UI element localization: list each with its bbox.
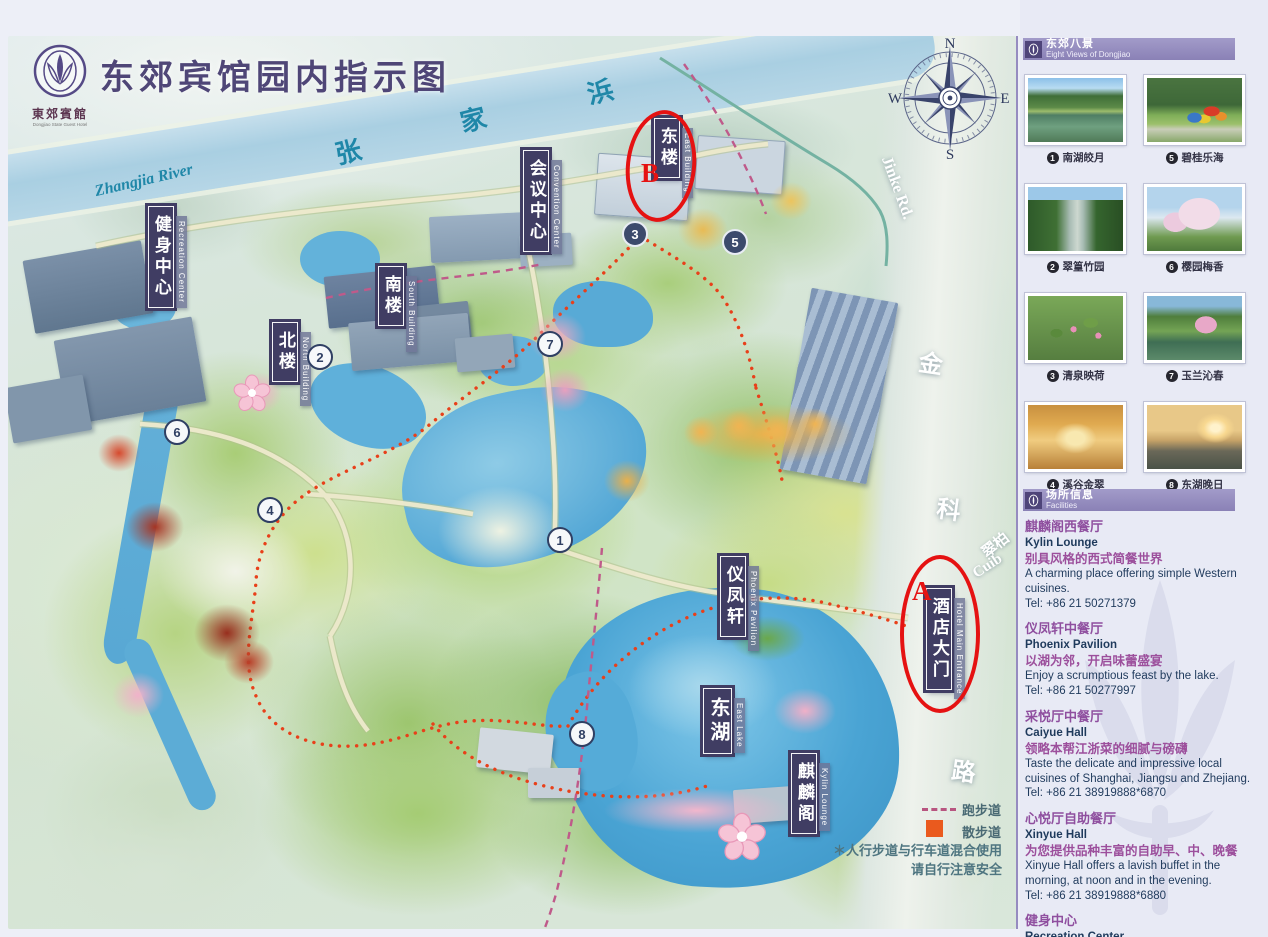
- view-label: 碧桂乐海: [1182, 150, 1224, 165]
- place-label-en: East Lake: [734, 698, 745, 753]
- map-marker-7: 7: [537, 331, 563, 357]
- place-north-building: 北楼 North Building: [272, 322, 311, 406]
- view-item: 5碧桂乐海: [1143, 75, 1246, 165]
- facility-caiyue-hall: 采悦厅中餐厅 Caiyue Hall 领略本帮江浙菜的细腻与磅礴 Taste t…: [1025, 709, 1259, 801]
- place-label-en: North Building: [300, 332, 311, 406]
- road-char: 科: [935, 489, 964, 527]
- place-phoenix-pavilion: 仪凤轩 Phoenix Pavilion: [720, 556, 759, 651]
- view-photo-sunset: [1144, 402, 1245, 472]
- view-number: 2: [1047, 261, 1059, 273]
- facility-desc-en: Xinyue Hall offers a lavish buffet in th…: [1025, 859, 1259, 888]
- view-item: 6樱园梅香: [1143, 184, 1246, 274]
- place-label-en: Recreation Center: [176, 216, 187, 308]
- facilities-title-zh: 场所信息: [1046, 490, 1094, 501]
- view-photo-magnolia: [1144, 293, 1245, 363]
- legend-walking-label: 散步道: [962, 822, 1001, 841]
- facility-phoenix-pavilion: 仪凤轩中餐厅 Phoenix Pavilion 以湖为邻，开启味蕾盛宴 Enjo…: [1025, 621, 1259, 699]
- hotel-logo-icon: [33, 44, 87, 98]
- place-label-en: Convention Center: [551, 160, 562, 254]
- map-title: 东郊宾馆园内指示图: [100, 50, 451, 99]
- facility-recreation-center: 健身中心 Recreation Center 激发您的健身热情，为健康充电 Ou…: [1025, 913, 1259, 937]
- eight-views-header: 东郊八景 Eight Views of Dongjiao: [1023, 38, 1235, 60]
- compass-w: W: [888, 91, 903, 107]
- view-item: 4溪谷金翠: [1024, 402, 1127, 492]
- hotel-mark-icon: [1025, 41, 1042, 58]
- ginkgo-tree: [760, 414, 794, 446]
- legend-jogging-label: 跑步道: [962, 800, 1001, 819]
- map-marker-8: 8: [569, 721, 595, 747]
- compass-e: E: [1000, 91, 1009, 107]
- road-char: 金: [917, 343, 946, 381]
- view-photo-playground: [1144, 75, 1245, 145]
- view-item: 7玉兰沁春: [1143, 293, 1246, 383]
- view-photo-lotus: [1025, 293, 1126, 363]
- facilities-header: 场所信息 Facilities: [1023, 489, 1235, 511]
- facility-desc-zh: 以湖为邻，开启味蕾盛宴: [1025, 653, 1259, 669]
- eight-views-title-en: Eight Views of Dongjiao: [1046, 51, 1130, 59]
- maple-tree: [126, 502, 184, 552]
- legend-jogging-sample: [922, 808, 956, 811]
- facility-desc-zh: 为您提供品种丰富的自助早、中、晚餐: [1025, 843, 1259, 859]
- gold-tree: [770, 182, 812, 220]
- boathouse: [528, 768, 580, 798]
- facilities-list: 麒麟阁西餐厅 Kylin Lounge 别具风格的西式简餐世界 A charmi…: [1025, 519, 1259, 937]
- facility-desc-en: A charming place offering simple Western…: [1025, 567, 1259, 596]
- place-label-en: South Building: [406, 276, 417, 352]
- place-recreation-center: 健身中心 Recreation Center: [148, 206, 187, 308]
- facility-name-en: Caiyue Hall: [1025, 726, 1259, 741]
- place-label-zh: 会议中心: [523, 150, 549, 252]
- facility-xinyue-hall: 心悦厅自助餐厅 Xinyue Hall 为您提供品种丰富的自助早、中、晚餐 Xi…: [1025, 811, 1259, 903]
- view-item: 1南湖皎月: [1024, 75, 1127, 165]
- facility-kylin-lounge: 麒麟阁西餐厅 Kylin Lounge 别具风格的西式简餐世界 A charmi…: [1025, 519, 1259, 611]
- place-convention-center: 会议中心 Convention Center: [523, 150, 562, 254]
- facility-name-en: Kylin Lounge: [1025, 536, 1259, 551]
- place-label-zh: 健身中心: [148, 206, 174, 308]
- ginkgo-tree: [684, 416, 718, 448]
- compass-rose: N E S W: [888, 36, 1012, 160]
- east-building-roof: [694, 135, 786, 195]
- place-kylin-lounge: 麒麟阁 Kylin Lounge: [791, 753, 830, 834]
- view-photo-cherry: [1144, 184, 1245, 254]
- sakura-icon: [716, 812, 768, 864]
- highlight-letter-A: A: [912, 576, 932, 607]
- facility-name-zh: 仪凤轩中餐厅: [1025, 621, 1259, 638]
- view-photo-lake: [1025, 75, 1126, 145]
- place-label-zh: 麒麟阁: [791, 753, 817, 834]
- hotel-logo: 東郊賓館 Dongjiao State Guest Hotel: [28, 44, 92, 127]
- safety-note-line1: ＊人行步道与行车道混合使用: [762, 842, 1002, 861]
- sakura-icon: [232, 374, 272, 414]
- park-map: Zhangjia River 张 家 浜 Jinke Rd. 金 科 路 翠柏 …: [8, 36, 1016, 929]
- view-photo-autumn: [1025, 402, 1126, 472]
- place-label-zh: 仪凤轩: [720, 556, 746, 637]
- place-label-zh: 北楼: [272, 322, 298, 382]
- place-south-building: 南楼 South Building: [378, 266, 417, 352]
- view-item: 3清泉映荷: [1024, 293, 1127, 383]
- hotel-logo-name-zh: 東郊賓館: [28, 105, 92, 122]
- view-number: 5: [1166, 152, 1178, 164]
- view-photo-bamboo: [1025, 184, 1126, 254]
- map-marker-2: 2: [307, 344, 333, 370]
- view-number: 6: [1166, 261, 1178, 273]
- facility-tel: Tel: +86 21 38919888*6870: [1025, 786, 1259, 801]
- facility-name-en: Phoenix Pavilion: [1025, 638, 1259, 653]
- legend-walking-sample: [926, 820, 943, 837]
- sidebar-divider: [1016, 36, 1018, 929]
- view-number: 1: [1047, 152, 1059, 164]
- sidebar: 东郊八景 Eight Views of Dongjiao 1南湖皎月 5碧桂乐海…: [1020, 0, 1268, 937]
- facility-desc-zh: 别具风格的西式简餐世界: [1025, 551, 1259, 567]
- sakura-tree: [540, 368, 590, 412]
- highlight-letter-B: B: [641, 158, 659, 189]
- road-char: 路: [950, 751, 979, 789]
- island: [438, 486, 563, 576]
- place-east-lake: 东湖 East Lake: [703, 688, 745, 754]
- map-poster: Zhangjia River 张 家 浜 Jinke Rd. 金 科 路 翠柏 …: [0, 0, 1268, 937]
- map-marker-5: 5: [722, 229, 748, 255]
- compass-n: N: [945, 36, 956, 52]
- facility-tel: Tel: +86 21 50271379: [1025, 597, 1259, 612]
- map-marker-1: 1: [547, 527, 573, 553]
- view-item: 2翠篁竹园: [1024, 184, 1127, 274]
- recreation-center-building: [8, 374, 92, 443]
- facility-desc-en: Taste the delicate and impressive local …: [1025, 757, 1259, 786]
- facility-desc-zh: 领略本帮江浙菜的细腻与磅礴: [1025, 741, 1259, 757]
- view-item: 8东湖晚日: [1143, 402, 1246, 492]
- view-label: 玉兰沁春: [1182, 368, 1224, 383]
- facility-tel: Tel: +86 21 38919888*6880: [1025, 889, 1259, 904]
- facility-name-zh: 健身中心: [1025, 913, 1259, 930]
- view-number: 7: [1166, 370, 1178, 382]
- view-label: 翠篁竹园: [1063, 259, 1105, 274]
- facility-name-zh: 麒麟阁西餐厅: [1025, 519, 1259, 536]
- south-building-roof: [455, 334, 516, 373]
- lotus-flowers: [774, 688, 836, 734]
- red-flower-tree: [98, 434, 140, 472]
- eight-views-title-zh: 东郊八景: [1046, 39, 1130, 50]
- facility-name-zh: 采悦厅中餐厅: [1025, 709, 1259, 726]
- place-label-zh: 南楼: [378, 266, 404, 326]
- sakura-tree: [112, 672, 164, 718]
- gold-tree: [604, 460, 650, 502]
- view-label: 樱园梅香: [1182, 259, 1224, 274]
- hotel-logo-name-en: Dongjiao State Guest Hotel: [28, 122, 92, 127]
- eight-views-grid: 1南湖皎月 5碧桂乐海 2翠篁竹园 6樱园梅香 3清泉映荷 7玉兰沁春: [1024, 75, 1246, 492]
- view-number: 3: [1047, 370, 1059, 382]
- view-label: 清泉映荷: [1063, 368, 1105, 383]
- hotel-mark-icon: [1025, 492, 1042, 509]
- place-label-zh: 东湖: [703, 688, 732, 754]
- map-marker-4: 4: [257, 497, 283, 523]
- ginkgo-tree: [798, 408, 832, 440]
- gold-tree: [678, 208, 728, 252]
- maple-tree: [224, 640, 274, 684]
- safety-note-line2: 请自行注意安全: [762, 861, 1002, 880]
- compass-s: S: [946, 147, 954, 160]
- facility-name-en: Xinyue Hall: [1025, 828, 1259, 843]
- facilities-title-en: Facilities: [1046, 502, 1094, 510]
- facility-tel: Tel: +86 21 50277997: [1025, 684, 1259, 699]
- facility-name-zh: 心悦厅自助餐厅: [1025, 811, 1259, 828]
- view-label: 南湖皎月: [1063, 150, 1105, 165]
- ginkgo-tree: [722, 410, 756, 442]
- map-marker-3: 3: [622, 221, 648, 247]
- place-label-en: Phoenix Pavilion: [748, 566, 759, 651]
- map-marker-6: 6: [164, 419, 190, 445]
- facility-name-en: Recreation Center: [1025, 930, 1259, 937]
- safety-note: ＊人行步道与行车道混合使用 请自行注意安全: [762, 842, 1002, 880]
- facility-desc-en: Enjoy a scrumptious feast by the lake.: [1025, 669, 1259, 684]
- place-label-en: Kylin Lounge: [819, 763, 830, 831]
